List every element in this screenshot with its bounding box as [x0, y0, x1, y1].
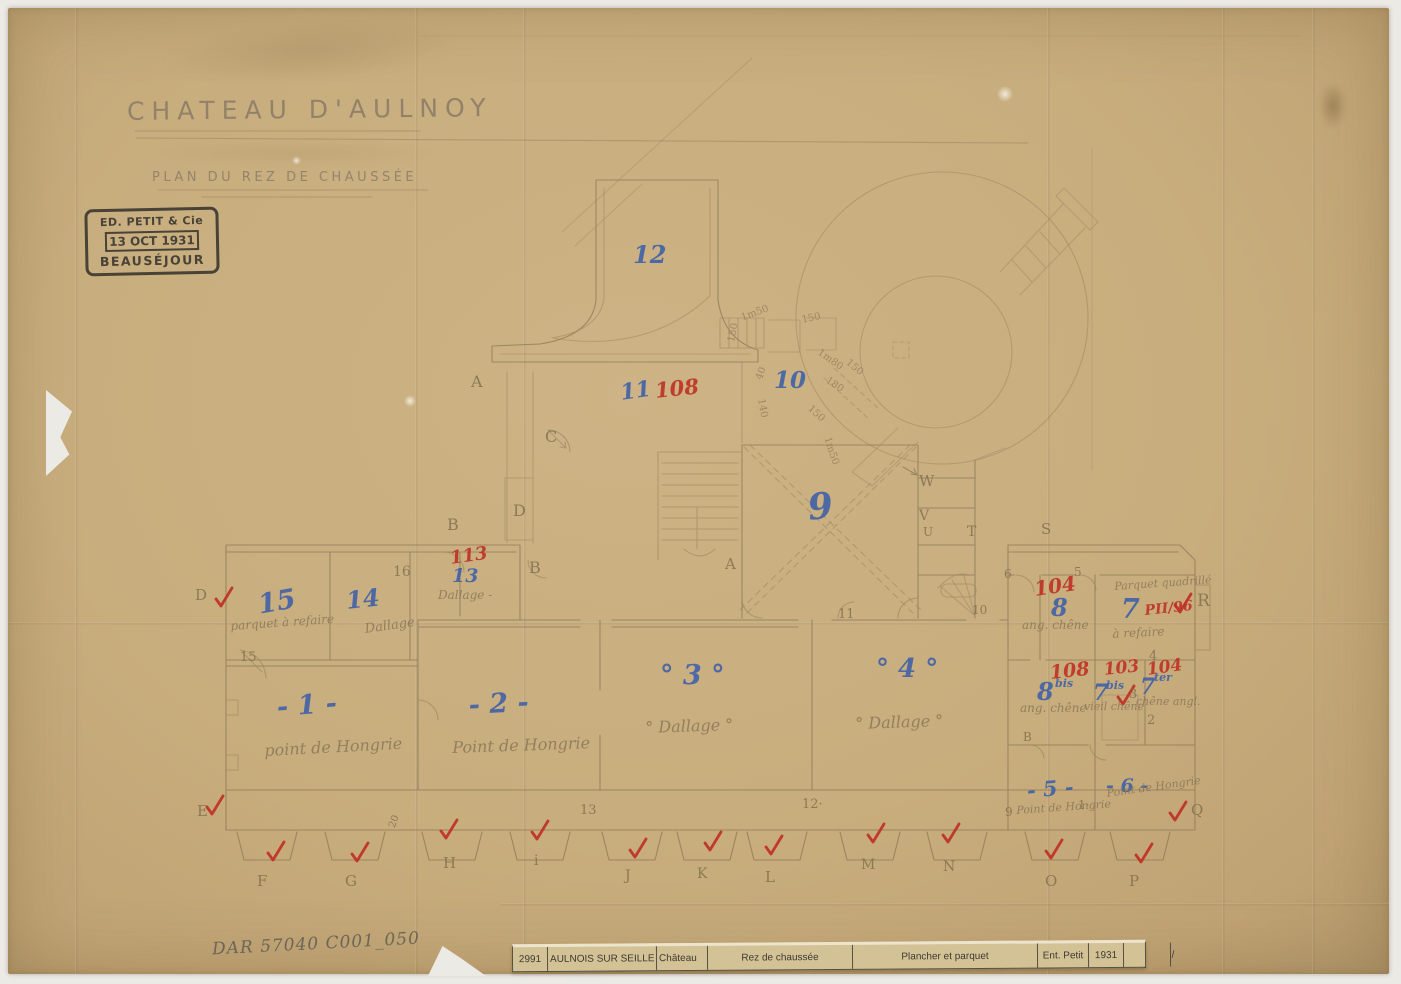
strip-cell-page: 38 / 55: [1170, 943, 1175, 967]
strip-cell-firm: Ent. Petit: [1037, 943, 1088, 967]
red-checkmark: [705, 832, 721, 850]
strip-cell-year: 1931: [1088, 943, 1123, 967]
red-checkmark: [1175, 594, 1191, 612]
red-checkmark: [1170, 802, 1186, 820]
strip-cell-subject: Plancher et parquet: [852, 944, 1037, 969]
strip-cell-blank: [1123, 943, 1170, 967]
red-checkmark: [1046, 840, 1062, 858]
scanned-floorplan-sheet: { "header": { "title": "CHATEAU D'AULNOY…: [0, 0, 1401, 984]
title-strip: 2991 AULNOIS SUR SEILLE Château Rez de c…: [512, 940, 1146, 972]
date-stamp: ED. PETIT & Cie 13 OCT 1931 BEAUSÉJOUR: [84, 207, 219, 277]
strip-cell-level: Rez de chaussée: [707, 945, 852, 970]
stamp-place: BEAUSÉJOUR: [94, 252, 210, 269]
strip-cell-building: Château: [656, 946, 707, 970]
red-checkmark: [268, 842, 284, 860]
sheet-subtitle: PLAN DU REZ DE CHAUSSÉE: [152, 170, 417, 185]
red-checkmark: [766, 836, 782, 854]
red-checkmark: [216, 588, 232, 606]
red-checkmark: [207, 796, 223, 814]
red-checkmarks-layer: [207, 588, 1191, 862]
sheet-title: CHATEAU D'AULNOY: [127, 93, 493, 126]
strip-cell-number: 2991: [513, 947, 547, 971]
red-checkmark: [441, 820, 457, 838]
strip-cell-commune: AULNOIS SUR SEILLE: [547, 946, 656, 971]
red-checkmark: [1136, 844, 1152, 862]
red-checkmark: [352, 843, 368, 861]
red-checkmark: [630, 839, 646, 857]
stamp-company: ED. PETIT & Cie: [93, 214, 209, 229]
floorplan-drawing: [0, 0, 1401, 984]
red-checkmark: [943, 824, 959, 842]
red-checkmark: [868, 824, 884, 842]
stamp-date: 13 OCT 1931: [105, 230, 199, 252]
